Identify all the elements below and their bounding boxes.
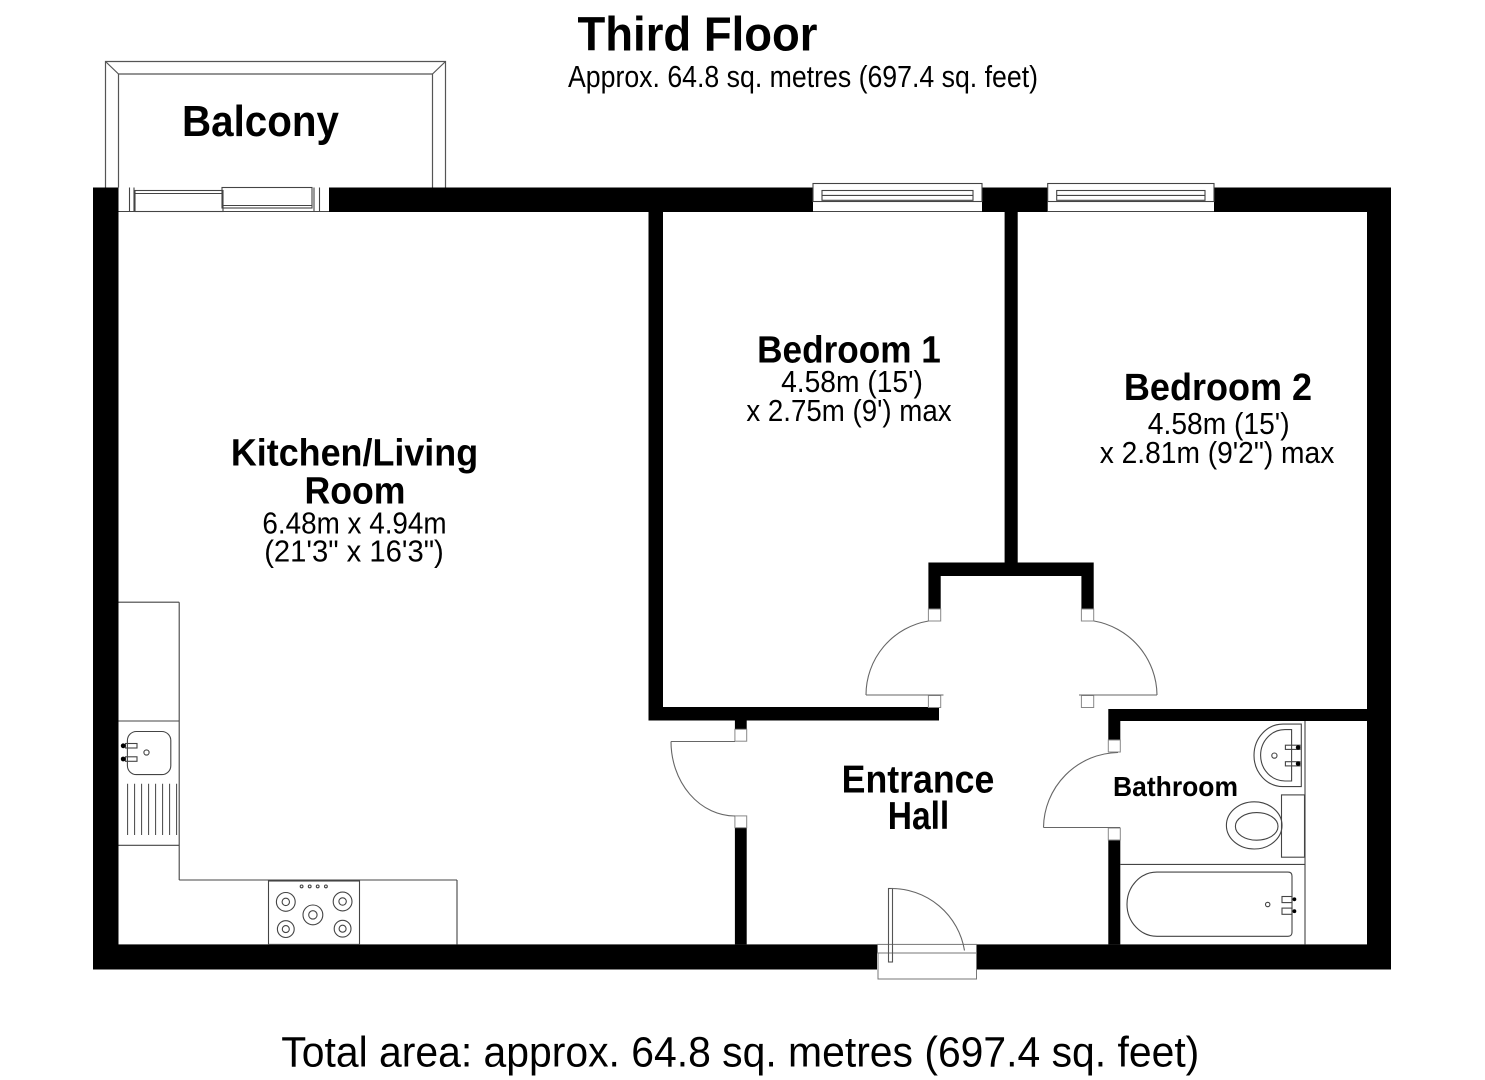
svg-text:Bathroom: Bathroom xyxy=(1113,771,1238,802)
svg-text:(21'3" x 16'3"): (21'3" x 16'3") xyxy=(264,534,444,568)
svg-text:x 2.75m (9') max: x 2.75m (9') max xyxy=(746,394,951,428)
svg-text:x 2.81m (9'2") max: x 2.81m (9'2") max xyxy=(1100,436,1335,470)
svg-text:Hall: Hall xyxy=(888,795,950,838)
svg-text:Third Floor: Third Floor xyxy=(578,9,818,62)
svg-text:Bedroom 2: Bedroom 2 xyxy=(1124,367,1312,409)
svg-text:Total area: approx. 64.8 sq. m: Total area: approx. 64.8 sq. metres (697… xyxy=(281,1029,1199,1077)
svg-text:Kitchen/Living: Kitchen/Living xyxy=(231,433,478,475)
svg-text:Approx. 64.8 sq. metres (697.4: Approx. 64.8 sq. metres (697.4 sq. feet) xyxy=(568,60,1038,94)
svg-text:Balcony: Balcony xyxy=(182,97,339,146)
